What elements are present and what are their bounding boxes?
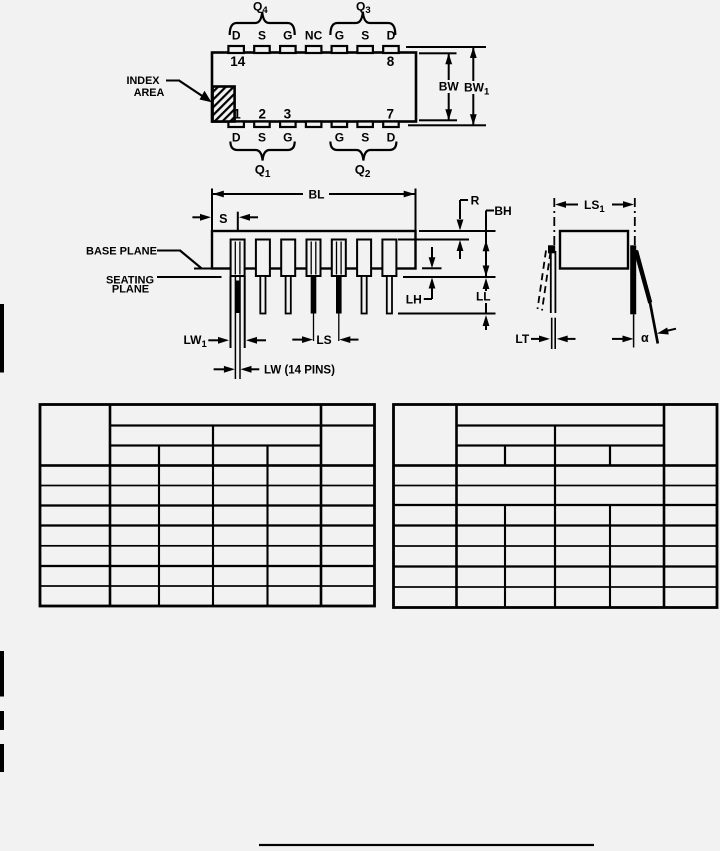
svg-text:G: G — [283, 29, 292, 43]
svg-text:LT: LT — [515, 332, 529, 346]
svg-text:7: 7 — [386, 107, 394, 122]
svg-text:S: S — [361, 131, 369, 145]
svg-text:LL: LL — [476, 290, 491, 304]
svg-text:INDEX: INDEX — [127, 75, 161, 87]
svg-text:NC: NC — [305, 29, 323, 43]
svg-text:BL: BL — [309, 187, 325, 201]
svg-text:S: S — [361, 29, 369, 43]
svg-text:LH: LH — [406, 292, 422, 306]
svg-text:14: 14 — [230, 54, 246, 69]
svg-text:R: R — [471, 193, 480, 207]
svg-text:BW: BW — [439, 80, 460, 94]
svg-text:BASE PLANE: BASE PLANE — [86, 246, 157, 258]
svg-text:LW (14 PINS): LW (14 PINS) — [264, 365, 335, 377]
svg-text:D: D — [232, 131, 241, 145]
svg-text:2: 2 — [259, 107, 267, 122]
svg-text:D: D — [232, 29, 241, 43]
svg-text:S: S — [258, 29, 266, 43]
svg-text:AREA: AREA — [134, 87, 165, 99]
svg-text:α: α — [641, 331, 649, 345]
svg-text:G: G — [283, 131, 292, 145]
svg-text:G: G — [335, 29, 344, 43]
svg-text:3: 3 — [284, 107, 292, 122]
svg-text:LS: LS — [316, 333, 331, 347]
svg-text:BH: BH — [494, 204, 511, 218]
svg-text:8: 8 — [387, 54, 395, 69]
svg-text:PLANE: PLANE — [112, 284, 149, 296]
svg-text:G: G — [335, 131, 344, 145]
svg-text:S: S — [219, 212, 227, 226]
svg-text:D: D — [387, 131, 396, 145]
svg-text:S: S — [258, 131, 266, 145]
